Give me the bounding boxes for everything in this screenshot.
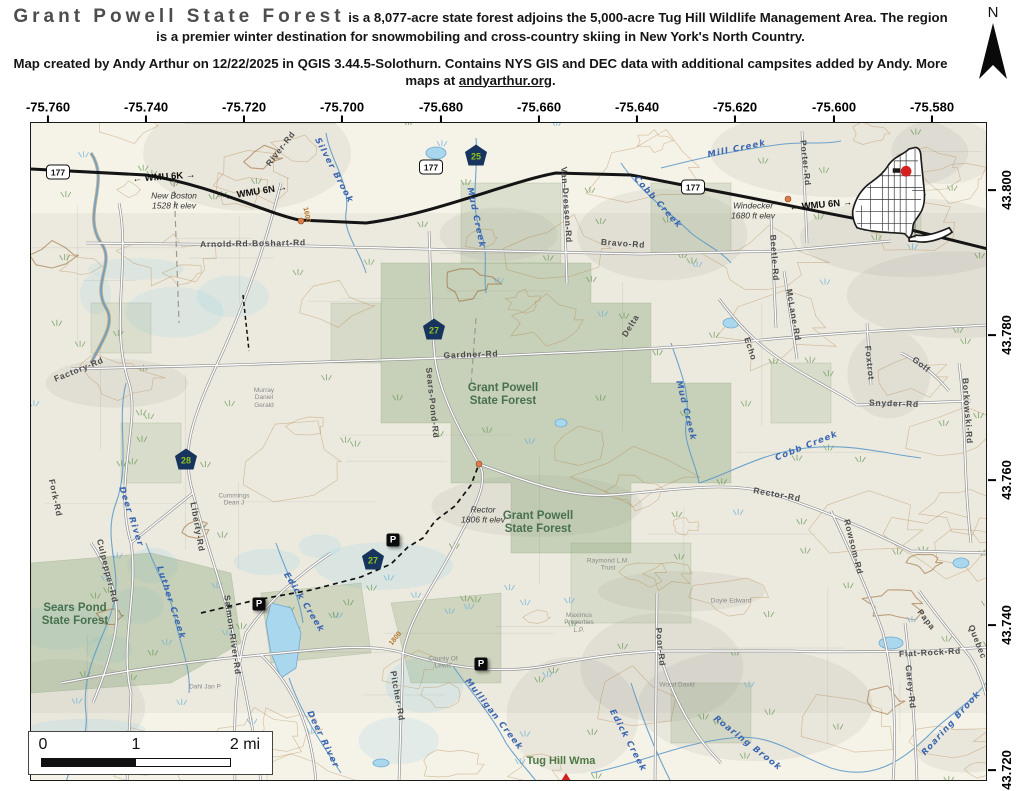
- credit-period: .: [552, 73, 556, 88]
- tick-mark: [988, 334, 996, 336]
- longitude-label: -75.660: [517, 100, 561, 115]
- scale-label: 2 mi: [230, 736, 260, 754]
- latitude-label: 43.780: [999, 315, 1014, 355]
- latitude-tick: 43.760: [988, 460, 1014, 500]
- north-arrow: N: [970, 4, 1016, 88]
- longitude-tick: -75.720: [222, 100, 266, 123]
- longitude-tick: -75.760: [26, 100, 70, 123]
- longitude-label: -75.740: [124, 100, 168, 115]
- scale-segment-empty: [136, 759, 230, 766]
- map-credit: Map created by Andy Arthur on 12/22/2025…: [8, 56, 953, 89]
- longitude-tick: -75.580: [910, 100, 954, 123]
- latitude-tick: 43.740: [988, 605, 1014, 645]
- parking-icon: P: [387, 534, 400, 547]
- parking-icon: P: [253, 598, 266, 611]
- longitude-tick: -75.680: [419, 100, 463, 123]
- scale-label: 0: [39, 736, 48, 754]
- ny-state-inset-map: [843, 146, 993, 256]
- longitude-label: -75.580: [910, 100, 954, 115]
- state-route-shield: 177: [681, 180, 705, 195]
- north-arrow-icon: [971, 21, 1015, 83]
- longitude-label: -75.620: [713, 100, 757, 115]
- latitude-tick: 43.720: [988, 750, 1014, 790]
- map-page: Grant Powell State Forest is a 8,077-acr…: [0, 0, 1024, 791]
- latitude-label: 43.740: [999, 605, 1014, 645]
- tick-mark: [988, 624, 996, 626]
- state-route-shield: 177: [419, 160, 443, 175]
- page-title: Grant Powell State Forest: [13, 6, 344, 27]
- latitude-tick: 43.780: [988, 315, 1014, 355]
- longitude-label: -75.760: [26, 100, 70, 115]
- location-marker: [901, 166, 912, 177]
- scale-bar: 012 mi: [28, 731, 273, 775]
- longitude-label: -75.720: [222, 100, 266, 115]
- longitude-tick: -75.620: [713, 100, 757, 123]
- scale-label: 1: [132, 736, 141, 754]
- latitude-label: 43.720: [999, 750, 1014, 790]
- map-header: Grant Powell State Forest is a 8,077-acr…: [8, 6, 953, 46]
- scale-segment-filled: [42, 759, 136, 766]
- tick-mark: [988, 479, 996, 481]
- latitude-label: 43.760: [999, 460, 1014, 500]
- parking-icon: P: [475, 658, 488, 671]
- longitude-label: -75.640: [615, 100, 659, 115]
- longitude-label: -75.600: [812, 100, 856, 115]
- longitude-label: -75.700: [320, 100, 364, 115]
- tick-mark: [988, 769, 996, 771]
- latitude-label: 43.800: [999, 170, 1014, 210]
- scale-bar-segments: [41, 758, 231, 767]
- andyarthur-link[interactable]: andyarthur.org: [459, 73, 552, 88]
- north-label: N: [970, 4, 1016, 21]
- state-route-shield: 177: [46, 165, 70, 180]
- longitude-tick: -75.740: [124, 100, 168, 123]
- longitude-label: -75.680: [419, 100, 463, 115]
- longitude-tick: -75.600: [812, 100, 856, 123]
- longitude-tick: -75.640: [615, 100, 659, 123]
- longitude-tick: -75.660: [517, 100, 561, 123]
- campsite-marker: [561, 773, 571, 781]
- longitude-tick: -75.700: [320, 100, 364, 123]
